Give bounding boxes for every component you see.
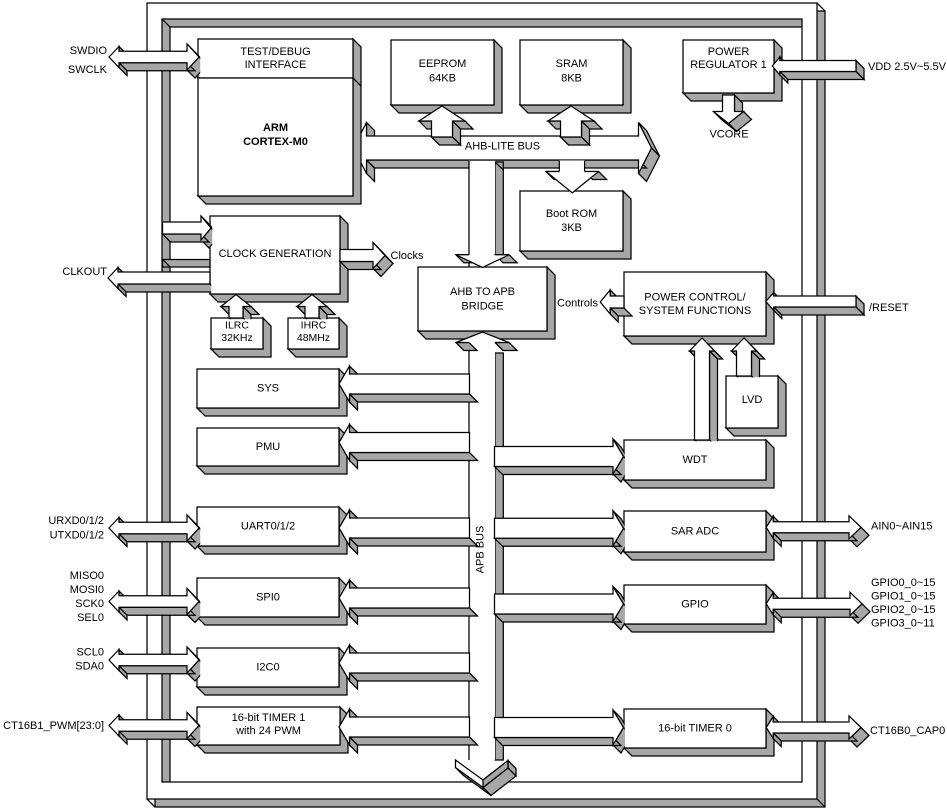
svg-text:INTERFACE: INTERFACE [245,59,307,71]
svg-text:SCK0: SCK0 [75,598,104,610]
svg-text:/RESET: /RESET [869,302,909,314]
svg-text:SWDIO: SWDIO [70,45,108,57]
svg-text:GPIO2_0~15: GPIO2_0~15 [871,604,936,616]
svg-text:I2C0: I2C0 [256,662,279,674]
svg-text:AHB TO APB: AHB TO APB [450,286,515,298]
svg-text:APB BUS: APB BUS [475,526,487,574]
svg-text:BRIDGE: BRIDGE [461,300,503,312]
svg-text:with 24 PWM: with 24 PWM [235,725,301,737]
svg-text:VDD 2.5V~5.5V: VDD 2.5V~5.5V [868,61,947,73]
svg-text:SDA0: SDA0 [75,661,104,673]
svg-text:ARM: ARM [263,122,288,134]
svg-text:WDT: WDT [682,454,707,466]
svg-text:CT16B1_PWM[23:0]: CT16B1_PWM[23:0] [3,720,104,732]
svg-text:8KB: 8KB [561,72,582,84]
svg-text:EEPROM: EEPROM [419,58,467,70]
svg-text:POWER CONTROL/: POWER CONTROL/ [644,291,746,303]
svg-text:CLOCK GENERATION: CLOCK GENERATION [219,248,332,260]
svg-text:SEL0: SEL0 [77,612,104,624]
svg-text:SCL0: SCL0 [76,647,104,659]
svg-text:TEST/DEBUG: TEST/DEBUG [240,46,310,58]
svg-text:SAR ADC: SAR ADC [671,526,719,538]
svg-text:Boot ROM: Boot ROM [546,208,597,220]
svg-text:URXD0/1/2: URXD0/1/2 [48,515,104,527]
svg-text:GPIO3_0~11: GPIO3_0~11 [871,618,935,630]
svg-text:Controls: Controls [557,297,598,309]
svg-text:SRAM: SRAM [556,58,588,70]
svg-text:3KB: 3KB [561,222,582,234]
svg-text:IHRC: IHRC [301,319,327,331]
svg-text:PMU: PMU [256,441,281,453]
svg-text:UTXD0/1/2: UTXD0/1/2 [50,530,104,542]
svg-text:VCORE: VCORE [709,129,748,141]
svg-text:GPIO1_0~15: GPIO1_0~15 [871,591,936,603]
svg-text:32KHz: 32KHz [221,332,253,344]
svg-text:REGULATOR 1: REGULATOR 1 [690,59,767,71]
svg-text:16-bit TIMER 0: 16-bit TIMER 0 [658,723,732,735]
svg-text:CT16B0_CAP0: CT16B0_CAP0 [870,725,945,737]
svg-text:GPIO: GPIO [681,599,709,611]
svg-text:16-bit TIMER 1: 16-bit TIMER 1 [232,712,306,724]
svg-text:ILRC: ILRC [225,319,249,331]
svg-text:CLKOUT: CLKOUT [62,266,107,278]
svg-text:POWER: POWER [708,46,750,58]
svg-text:AHB-LITE BUS: AHB-LITE BUS [465,141,540,153]
svg-text:SYS: SYS [257,383,279,395]
svg-text:SYSTEM FUNCTIONS: SYSTEM FUNCTIONS [639,305,751,317]
svg-text:MOSI0: MOSI0 [70,584,104,596]
svg-text:SWCLK: SWCLK [68,64,108,76]
svg-text:CORTEX-M0: CORTEX-M0 [243,136,308,148]
svg-text:48MHz: 48MHz [297,332,330,344]
svg-text:AIN0~AIN15: AIN0~AIN15 [871,521,932,533]
svg-text:MISO0: MISO0 [70,570,104,582]
svg-text:LVD: LVD [742,394,763,406]
svg-text:SPI0: SPI0 [256,592,280,604]
svg-text:UART0/1/2: UART0/1/2 [241,521,295,533]
svg-text:Clocks: Clocks [391,250,425,262]
svg-text:64KB: 64KB [429,72,456,84]
svg-text:GPIO0_0~15: GPIO0_0~15 [871,577,936,589]
